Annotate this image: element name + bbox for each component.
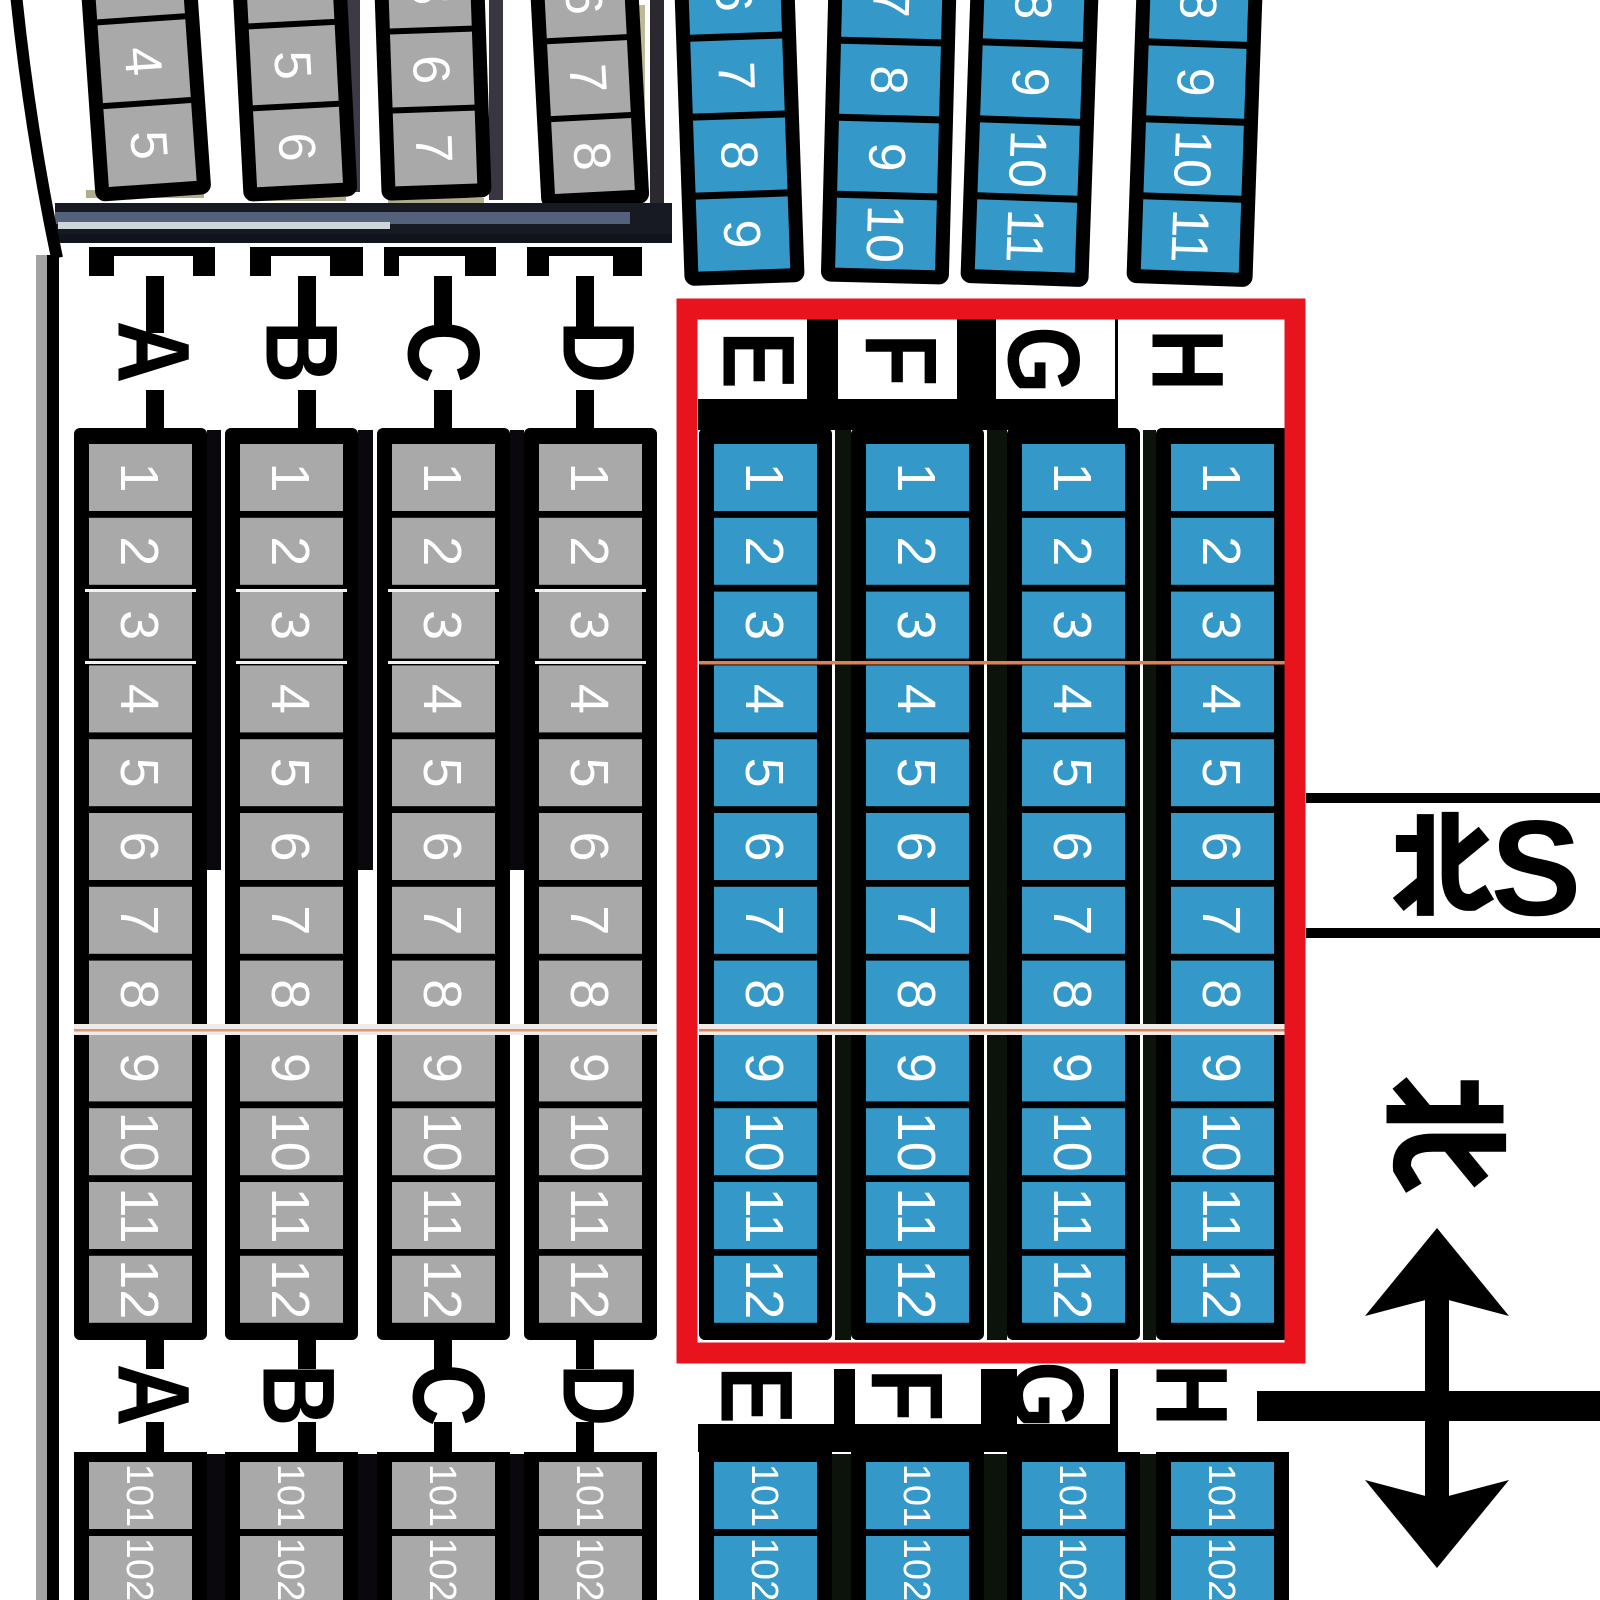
svg-text:3: 3 (109, 610, 169, 640)
svg-text:7: 7 (260, 905, 320, 935)
svg-text:8: 8 (1168, 0, 1227, 21)
svg-text:4: 4 (412, 684, 472, 714)
svg-text:101: 101 (421, 1464, 463, 1527)
svg-text:11: 11 (886, 1187, 946, 1243)
svg-text:4: 4 (559, 684, 619, 714)
svg-text:8: 8 (109, 979, 169, 1009)
svg-text:9: 9 (712, 219, 771, 250)
svg-text:11: 11 (109, 1187, 169, 1243)
svg-text:4: 4 (260, 684, 320, 714)
svg-text:7: 7 (886, 905, 946, 935)
svg-text:10: 10 (109, 1112, 169, 1172)
svg-text:2: 2 (886, 536, 946, 566)
svg-text:6: 6 (886, 831, 946, 861)
svg-text:5: 5 (886, 758, 946, 788)
svg-text:8: 8 (1003, 0, 1062, 21)
svg-text:6: 6 (704, 0, 763, 13)
svg-text:10: 10 (260, 1112, 320, 1172)
svg-text:1: 1 (412, 462, 472, 492)
svg-text:4: 4 (1042, 684, 1102, 714)
svg-text:A: A (96, 1364, 210, 1427)
svg-text:102: 102 (743, 1538, 785, 1600)
svg-text:101: 101 (743, 1464, 785, 1527)
svg-text:6: 6 (267, 131, 326, 163)
svg-text:2: 2 (109, 536, 169, 566)
svg-text:3: 3 (1191, 610, 1251, 640)
svg-text:C: C (386, 321, 500, 384)
svg-text:7: 7 (734, 905, 794, 935)
svg-text:102: 102 (895, 1538, 937, 1600)
svg-text:9: 9 (1042, 1053, 1102, 1083)
svg-text:10: 10 (886, 1112, 946, 1172)
svg-text:F: F (849, 1369, 963, 1422)
svg-text:9: 9 (412, 1053, 472, 1083)
svg-text:8: 8 (562, 140, 621, 172)
svg-text:8: 8 (1042, 979, 1102, 1009)
svg-text:11: 11 (734, 1187, 794, 1243)
svg-text:11: 11 (412, 1187, 472, 1243)
svg-text:8: 8 (886, 979, 946, 1009)
svg-text:101: 101 (1200, 1464, 1242, 1527)
svg-text:12: 12 (886, 1259, 946, 1319)
svg-text:A: A (96, 321, 210, 384)
svg-text:11: 11 (260, 1187, 320, 1243)
svg-text:12: 12 (559, 1259, 619, 1319)
svg-text:12: 12 (260, 1259, 320, 1319)
svg-text:6: 6 (401, 54, 460, 85)
svg-text:D: D (541, 1364, 655, 1427)
svg-text:4: 4 (734, 684, 794, 714)
svg-text:5: 5 (559, 758, 619, 788)
svg-text:9: 9 (734, 1053, 794, 1083)
svg-text:6: 6 (412, 831, 472, 861)
svg-text:5: 5 (262, 49, 321, 81)
svg-text:9: 9 (109, 1053, 169, 1083)
svg-text:102: 102 (568, 1538, 610, 1600)
svg-text:9: 9 (1165, 67, 1224, 98)
svg-text:102: 102 (118, 1538, 160, 1600)
svg-text:G: G (990, 1361, 1104, 1428)
svg-text:11: 11 (1191, 1187, 1251, 1243)
svg-text:12: 12 (734, 1259, 794, 1319)
svg-text:8: 8 (260, 979, 320, 1009)
svg-text:7: 7 (557, 62, 616, 94)
svg-text:2: 2 (1042, 536, 1102, 566)
svg-text:10: 10 (412, 1112, 472, 1172)
svg-text:8: 8 (412, 979, 472, 1009)
svg-text:10: 10 (559, 1112, 619, 1172)
svg-text:7: 7 (1042, 905, 1102, 935)
svg-text:7: 7 (109, 905, 169, 935)
svg-text:3: 3 (559, 610, 619, 640)
svg-text:8: 8 (709, 140, 768, 171)
svg-text:9: 9 (1191, 1053, 1251, 1083)
svg-text:E: E (701, 331, 815, 389)
svg-text:4: 4 (886, 684, 946, 714)
svg-text:1: 1 (559, 462, 619, 492)
svg-text:E: E (699, 1366, 813, 1424)
svg-text:7: 7 (559, 905, 619, 935)
svg-text:102: 102 (1200, 1538, 1242, 1600)
svg-text:9: 9 (559, 1053, 619, 1083)
svg-text:6: 6 (734, 831, 794, 861)
svg-text:5: 5 (118, 129, 178, 162)
svg-text:6: 6 (559, 831, 619, 861)
svg-text:B: B (244, 321, 358, 384)
svg-text:10: 10 (997, 129, 1057, 189)
svg-text:102: 102 (269, 1538, 311, 1600)
svg-text:12: 12 (1191, 1259, 1251, 1319)
svg-text:7: 7 (404, 133, 463, 164)
svg-text:G: G (986, 326, 1100, 393)
svg-text:3: 3 (1042, 610, 1102, 640)
svg-text:1: 1 (109, 462, 169, 492)
svg-text:8: 8 (734, 979, 794, 1009)
svg-text:5: 5 (734, 758, 794, 788)
svg-text:7: 7 (706, 61, 765, 92)
svg-text:1: 1 (1191, 462, 1251, 492)
svg-text:101: 101 (895, 1464, 937, 1527)
svg-text:12: 12 (1042, 1259, 1102, 1319)
svg-text:5: 5 (109, 758, 169, 788)
svg-text:C: C (391, 1364, 505, 1427)
svg-text:7: 7 (861, 0, 920, 18)
svg-text:8: 8 (859, 65, 918, 95)
svg-text:11: 11 (559, 1187, 619, 1243)
svg-text:7: 7 (1191, 905, 1251, 935)
svg-text:2: 2 (559, 536, 619, 566)
svg-text:1: 1 (1042, 462, 1102, 492)
svg-text:11: 11 (1042, 1187, 1102, 1243)
svg-text:1: 1 (886, 462, 946, 492)
svg-text:4: 4 (109, 684, 169, 714)
svg-text:2: 2 (734, 536, 794, 566)
svg-text:10: 10 (855, 204, 914, 263)
svg-text:9: 9 (1000, 67, 1059, 98)
svg-text:8: 8 (1191, 979, 1251, 1009)
svg-text:4: 4 (112, 45, 172, 78)
svg-text:2: 2 (260, 536, 320, 566)
svg-text:S: S (1491, 792, 1582, 944)
svg-text:101: 101 (1051, 1464, 1093, 1527)
svg-text:11: 11 (994, 208, 1054, 264)
svg-text:9: 9 (886, 1053, 946, 1083)
svg-text:H: H (1134, 1364, 1248, 1427)
svg-text:1: 1 (734, 462, 794, 492)
svg-text:9: 9 (857, 142, 916, 172)
svg-text:3: 3 (734, 610, 794, 640)
svg-text:5: 5 (1191, 758, 1251, 788)
svg-text:6: 6 (109, 831, 169, 861)
svg-text:F: F (843, 334, 957, 387)
svg-text:3: 3 (260, 610, 320, 640)
svg-text:5: 5 (412, 758, 472, 788)
svg-text:1: 1 (260, 462, 320, 492)
svg-text:102: 102 (1051, 1538, 1093, 1600)
svg-text:102: 102 (421, 1538, 463, 1600)
svg-text:12: 12 (109, 1259, 169, 1319)
svg-text:10: 10 (1162, 129, 1222, 189)
svg-text:3: 3 (412, 610, 472, 640)
svg-text:101: 101 (568, 1464, 610, 1527)
svg-text:4: 4 (1191, 684, 1251, 714)
svg-text:D: D (541, 321, 655, 384)
svg-text:9: 9 (260, 1053, 320, 1083)
svg-text:101: 101 (269, 1464, 311, 1527)
svg-text:10: 10 (734, 1112, 794, 1172)
svg-text:6: 6 (1042, 831, 1102, 861)
svg-text:7: 7 (412, 905, 472, 935)
svg-text:6: 6 (1191, 831, 1251, 861)
svg-text:6: 6 (260, 831, 320, 861)
svg-text:H: H (1130, 329, 1244, 392)
svg-text:8: 8 (559, 979, 619, 1009)
svg-text:11: 11 (1159, 208, 1219, 264)
svg-text:5: 5 (1042, 758, 1102, 788)
svg-text:5: 5 (260, 758, 320, 788)
svg-text:101: 101 (118, 1464, 160, 1527)
svg-text:10: 10 (1191, 1112, 1251, 1172)
svg-text:10: 10 (1042, 1112, 1102, 1172)
svg-text:2: 2 (412, 536, 472, 566)
svg-text:12: 12 (412, 1259, 472, 1319)
svg-text:3: 3 (886, 610, 946, 640)
svg-text:2: 2 (1191, 536, 1251, 566)
svg-text:B: B (241, 1364, 355, 1427)
